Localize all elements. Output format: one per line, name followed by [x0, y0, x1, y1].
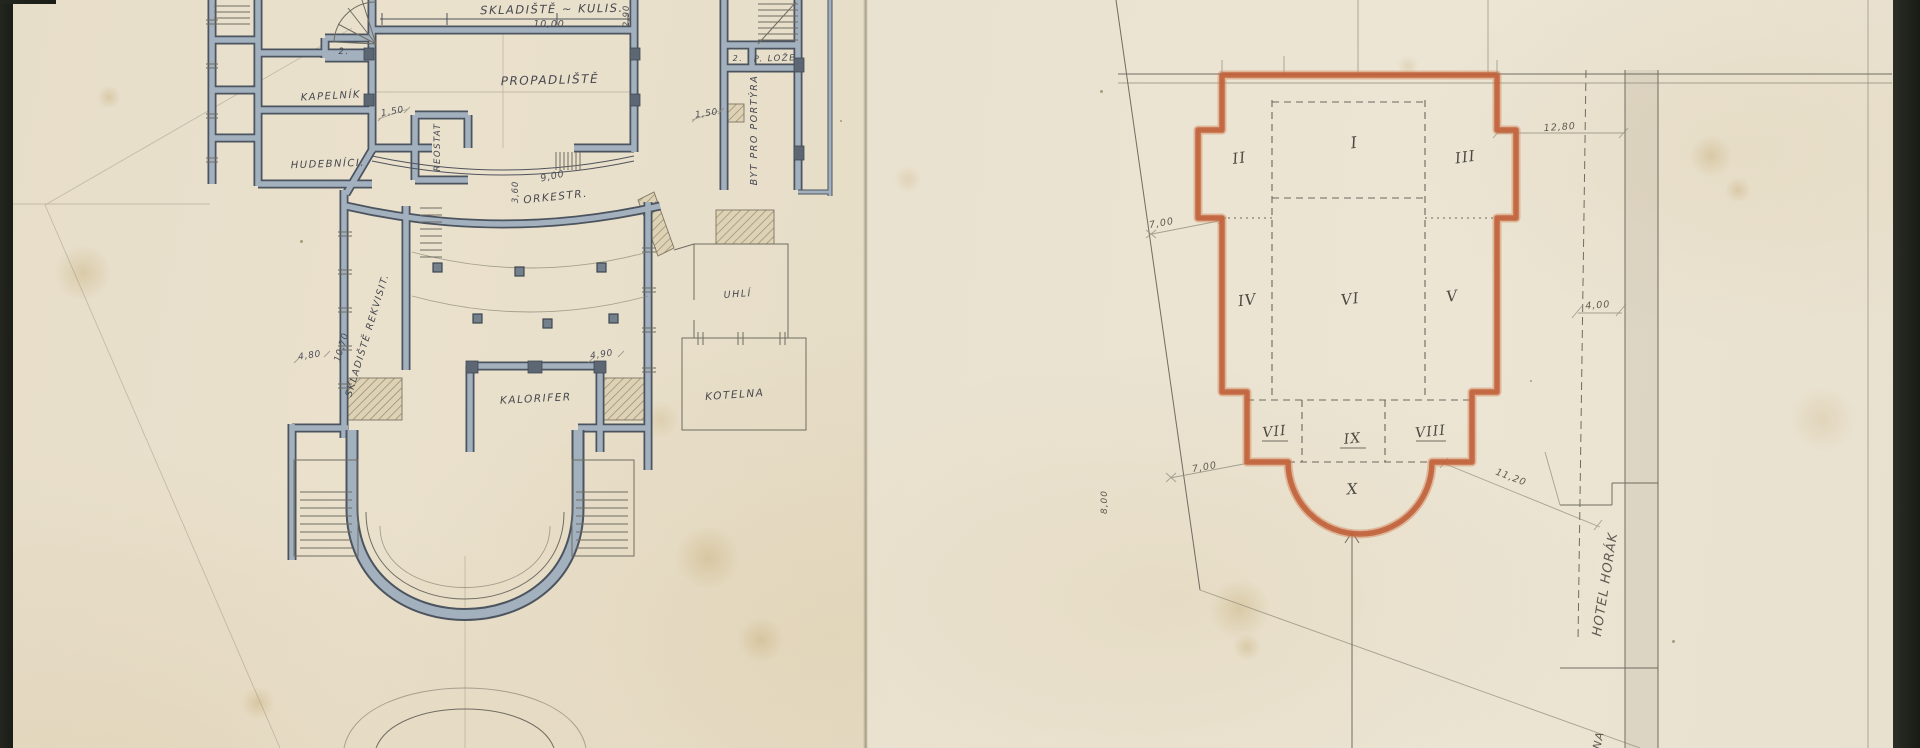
- zone-numeral-viii: VIII: [1414, 422, 1446, 441]
- dim-11-20: 11,20: [1494, 467, 1528, 489]
- room-label-uhli: UHLÍ: [723, 287, 752, 301]
- dim-1-50-right: 1,50: [695, 107, 719, 120]
- dim-1-50-left: 1,50: [380, 105, 405, 119]
- scanned-architectural-drawing: SKLADIŠTĚ ~ KULIS. 10,00 2,90 PROPADLIŠT…: [0, 0, 1920, 748]
- room-label-kotelna: KOTELNA: [705, 387, 765, 403]
- room-label-propadliste: PROPADLIŠTĚ: [501, 71, 600, 89]
- site-labels: HOTEL HORÁK NA: [1589, 531, 1621, 748]
- street-strip: [1625, 70, 1658, 748]
- room-label-hudebnici: HUDEBNÍCI.: [291, 156, 366, 172]
- boiler-wing: [674, 244, 806, 430]
- room-label-p-loze: P. LOŽE: [754, 51, 797, 64]
- dim-4-90: 4,90: [590, 348, 614, 361]
- plot-lines: [1116, 0, 1892, 748]
- dim-4-80: 4,80: [298, 349, 322, 362]
- dim-12-80: 12,80: [1543, 121, 1576, 134]
- site-plan: II I III IV VI V VII IX VIII X 7,00 12,8…: [1100, 0, 1892, 748]
- zone-numeral-iii: III: [1453, 147, 1477, 168]
- zone-numeral-ix: IX: [1342, 430, 1362, 448]
- zone-numeral-iv: IV: [1236, 290, 1259, 311]
- room-label-skladiste-kulis: SKLADIŠTĚ ~ KULIS.: [480, 0, 624, 17]
- zone-numeral-ii: II: [1230, 148, 1247, 168]
- dim-10-00: 10,00: [533, 19, 564, 30]
- room-label-reostat: REOSTAT: [433, 123, 443, 172]
- room-label-byt-pro-portyra: BYT PRO PORTÝRA: [748, 75, 760, 186]
- zone-numerals: II I III IV VI V VII IX VIII X: [1230, 133, 1477, 499]
- zone-numeral-vi: VI: [1340, 289, 1361, 309]
- theatre-basement-plan: SKLADIŠTĚ ~ KULIS. 10,00 2,90 PROPADLIŠT…: [13, 0, 830, 748]
- zone-numeral-vii: VII: [1262, 423, 1288, 441]
- dim-7-00-upper: 7,00: [1148, 216, 1175, 231]
- crease-lines: [13, 28, 634, 748]
- auditorium-columns: [433, 263, 618, 328]
- zone-numeral-i: I: [1348, 133, 1359, 153]
- site-dimension-texts: 7,00 12,80 4,00 7,00 11,20 8,00: [1100, 121, 1611, 514]
- room-label-kalorifer: KALORIFER: [500, 391, 572, 407]
- drawing-linework: SKLADIŠTĚ ~ KULIS. 10,00 2,90 PROPADLIŠT…: [0, 0, 1920, 748]
- dim-7-00-lower: 7,00: [1191, 460, 1218, 475]
- room-label-orkestr: ORKESTR.: [523, 188, 589, 207]
- zone-numeral-x: X: [1345, 480, 1359, 499]
- mat-border-right: [1893, 0, 1920, 748]
- dim-9-00: 9,00: [539, 169, 565, 185]
- mat-border-left: [0, 0, 13, 748]
- dim-3-60: 3,60: [511, 181, 521, 203]
- hotel-horak-label: HOTEL HORÁK: [1589, 531, 1621, 638]
- dim-2-90: 2,90: [622, 5, 632, 27]
- room-number-2-left: 2.: [338, 47, 349, 57]
- dim-4-00: 4,00: [1585, 299, 1611, 312]
- dim-8-00: 8,00: [1100, 490, 1110, 514]
- edge-partial-text: NA: [1590, 730, 1606, 748]
- room-label-kapelnik: KAPELNÍK: [300, 87, 361, 103]
- room-number-2-right: 2.: [733, 54, 744, 63]
- zone-numeral-v: V: [1445, 286, 1460, 306]
- mat-border-top: [0, 0, 56, 4]
